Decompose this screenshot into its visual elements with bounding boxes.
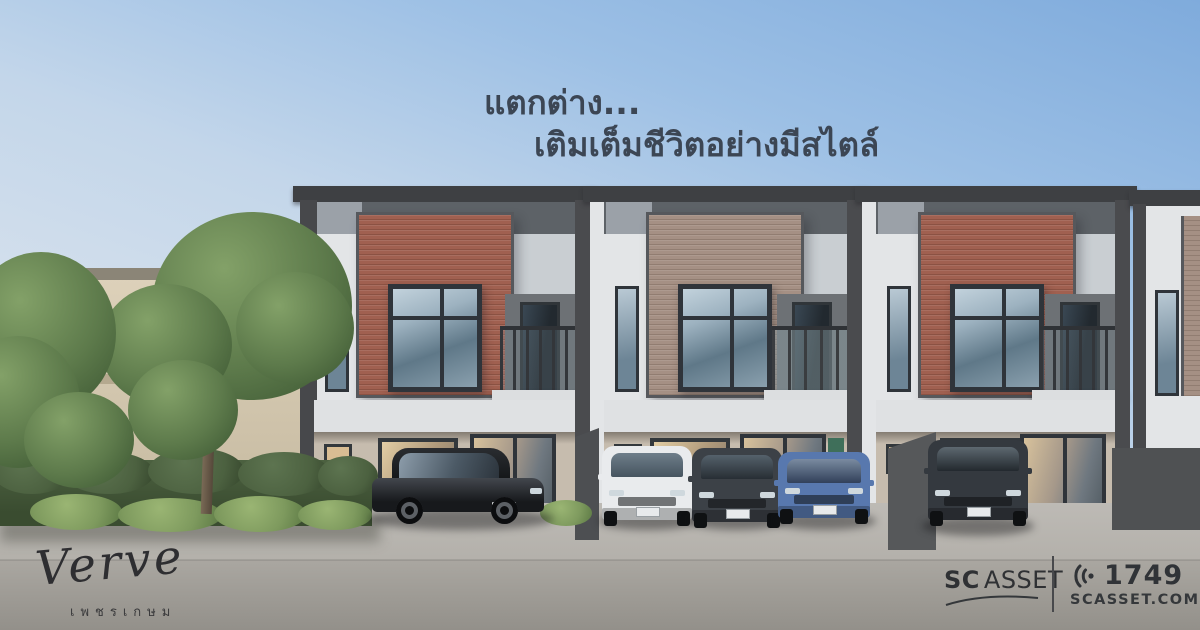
side-window [887,286,911,392]
ad-canvas: แตกต่าง... เติมเต็มชีวิตอย่างมีสไตล์ [0,0,1200,630]
window-glass [1158,293,1176,393]
tree-foliage [24,392,134,488]
floor-divider-band [876,400,1116,432]
tree-foliage [128,360,238,460]
hotline-number: 1749 [1104,560,1183,591]
car-white-suv [602,446,692,526]
window-mullion [393,316,477,320]
car-grille [618,497,676,506]
upper-window [388,284,482,392]
car-windshield [787,459,861,483]
window-glass [955,289,1039,387]
sc-asset-logo-sc: SC [944,566,980,594]
car-headlight [760,492,775,498]
window-mullion [683,316,767,320]
car-windows [399,453,499,479]
car-windshield [701,455,773,479]
car-headlight [1006,490,1021,496]
car-black-sedan [372,448,544,524]
side-window [615,286,639,392]
car-license-plate [636,507,660,517]
car-license-plate [813,505,837,515]
car-wheel [930,511,943,526]
side-window [1155,290,1179,396]
upper-window [678,284,772,392]
website-url: SCASSET.COM [1070,592,1200,608]
tree-foliage [236,272,354,384]
hedge-top [318,456,378,496]
window-mullion [955,316,1039,320]
logo-divider [1052,556,1054,612]
balcony-railing [772,326,856,394]
car-headlight [530,488,542,494]
floor-divider-band [314,400,576,432]
balcony-railing [1040,326,1124,394]
car-wheel [1013,511,1026,526]
car-dark-suv [692,448,782,528]
hotline-block: 1749 SCASSET.COM [1070,560,1200,608]
car-mirror [867,480,874,486]
bush [298,500,372,530]
upper-window [950,284,1044,392]
car-wheel [855,509,868,524]
roof-eave [583,186,869,202]
project-logo: Verve เพชรเกษม [38,542,187,622]
roof-eave [293,186,597,202]
window-mullion [730,289,734,387]
car-headlight [848,488,863,494]
car-grille [944,497,1012,506]
window-mullion [440,289,444,387]
balcony-deck [764,390,860,400]
bush [214,496,306,532]
car-grille [794,495,854,504]
car-headlight [785,488,800,494]
hedge-top [238,452,330,496]
car-wheel [780,509,793,524]
car-headlight [670,490,685,496]
window-glass [618,289,636,389]
car-wheel [694,513,707,528]
car-headlight [935,490,950,496]
roof-eave [855,186,1137,202]
car-mirror [924,468,931,474]
project-logo-location: เพชรเกษม [70,601,187,622]
window-glass [890,289,908,389]
car-windshield [937,447,1019,471]
headline-line1: แตกต่าง... [484,84,879,123]
car-wheel [491,497,518,524]
car-dark-suv-right [928,440,1028,526]
car-blue-sedan [778,452,870,524]
car-mirror [1025,468,1032,474]
window-mullion [1002,289,1006,387]
sc-swoosh-underline [944,595,1040,607]
sc-asset-logo: SCASSET [944,566,1063,607]
balcony-railing [500,326,584,394]
brick-panel [1181,216,1200,396]
car-mirror [688,476,695,482]
window-glass [393,289,477,387]
car-headlight [609,490,624,496]
headline: แตกต่าง... เติมเต็มชีวิตอย่างมีสไตล์ [484,84,879,165]
balcony-deck [492,390,588,400]
car-headlight [699,492,714,498]
floor-divider-band [604,400,848,432]
balcony-deck [1032,390,1128,400]
ground-glass-door [1020,434,1106,508]
car-license-plate [967,507,991,517]
car-wheel [396,497,423,524]
project-logo-name: Verve [33,529,187,597]
headline-line2: เติมเต็มชีวิตอย่างมีสไตล์ [534,126,879,165]
door-mullion [1063,438,1067,508]
car-grille [708,499,766,508]
front-fence-wall [1112,448,1200,530]
car-windshield [611,453,683,477]
car-mirror [598,474,605,480]
car-mirror [774,480,781,486]
car-wheel [604,511,617,526]
call-waves-icon [1070,561,1100,591]
car-license-plate [726,509,750,519]
bush [30,494,122,530]
window-glass [683,289,767,387]
